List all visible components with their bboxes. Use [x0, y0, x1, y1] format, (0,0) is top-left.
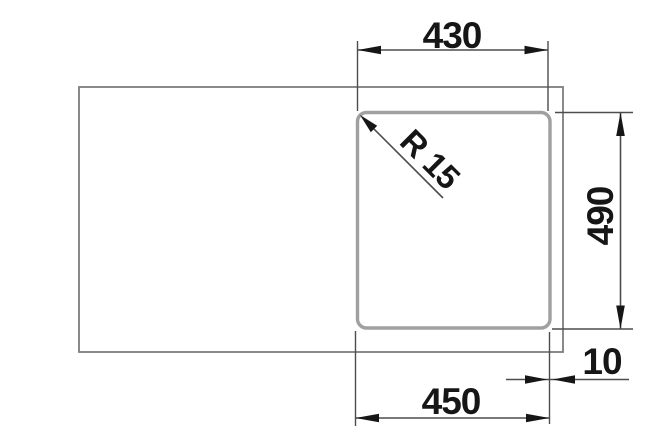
- radius-callout: R 15: [360, 115, 467, 198]
- technical-drawing-canvas: 430 490 450 10: [0, 0, 666, 440]
- dimension-edge-offset: 10: [506, 341, 629, 384]
- dimension-top-width: 430: [358, 15, 549, 111]
- dimension-bottom-width: 450: [356, 331, 550, 426]
- arrowhead-right-icon: [525, 375, 548, 383]
- arrowhead-down-icon: [616, 306, 625, 330]
- dimension-label-bottom: 450: [422, 381, 481, 422]
- arrowhead-right-icon: [526, 414, 550, 423]
- sink-plan: [79, 87, 563, 352]
- dimension-label-offset: 10: [582, 341, 622, 382]
- arrowhead-up-icon: [616, 113, 625, 137]
- dimension-label-top: 430: [423, 15, 482, 56]
- sink-outline: [79, 87, 563, 352]
- sink-dimension-drawing: 430 490 450 10: [0, 0, 666, 440]
- arrowhead-left-icon: [356, 414, 380, 423]
- dimension-label-right: 490: [580, 186, 621, 245]
- arrowhead-left-icon: [358, 46, 382, 55]
- dimension-right-depth: 490: [552, 113, 633, 330]
- arrowhead-left-icon: [553, 375, 576, 383]
- bowl-outline: [358, 113, 551, 329]
- radius-label: R 15: [393, 122, 467, 196]
- arrowhead-right-icon: [525, 46, 549, 55]
